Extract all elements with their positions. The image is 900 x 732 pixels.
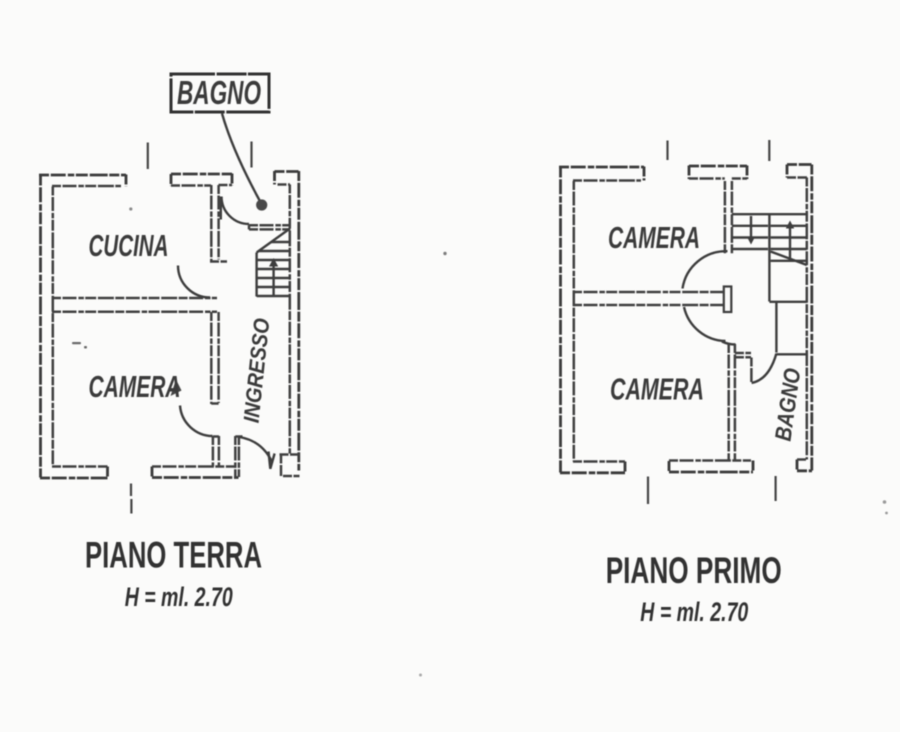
svg-text:PIANO PRIMO: PIANO PRIMO — [606, 550, 782, 591]
svg-text:CUCINA: CUCINA — [89, 228, 169, 263]
svg-text:CAMERA: CAMERA — [610, 372, 704, 407]
svg-text:CAMERA: CAMERA — [89, 369, 181, 404]
svg-text:H = ml. 2.70: H = ml. 2.70 — [640, 597, 748, 627]
svg-text:H = ml. 2.70: H = ml. 2.70 — [125, 582, 233, 612]
svg-text:BAGNO: BAGNO — [177, 74, 261, 111]
svg-text:CAMERA: CAMERA — [608, 220, 700, 255]
svg-text:PIANO TERRA: PIANO TERRA — [85, 535, 262, 576]
